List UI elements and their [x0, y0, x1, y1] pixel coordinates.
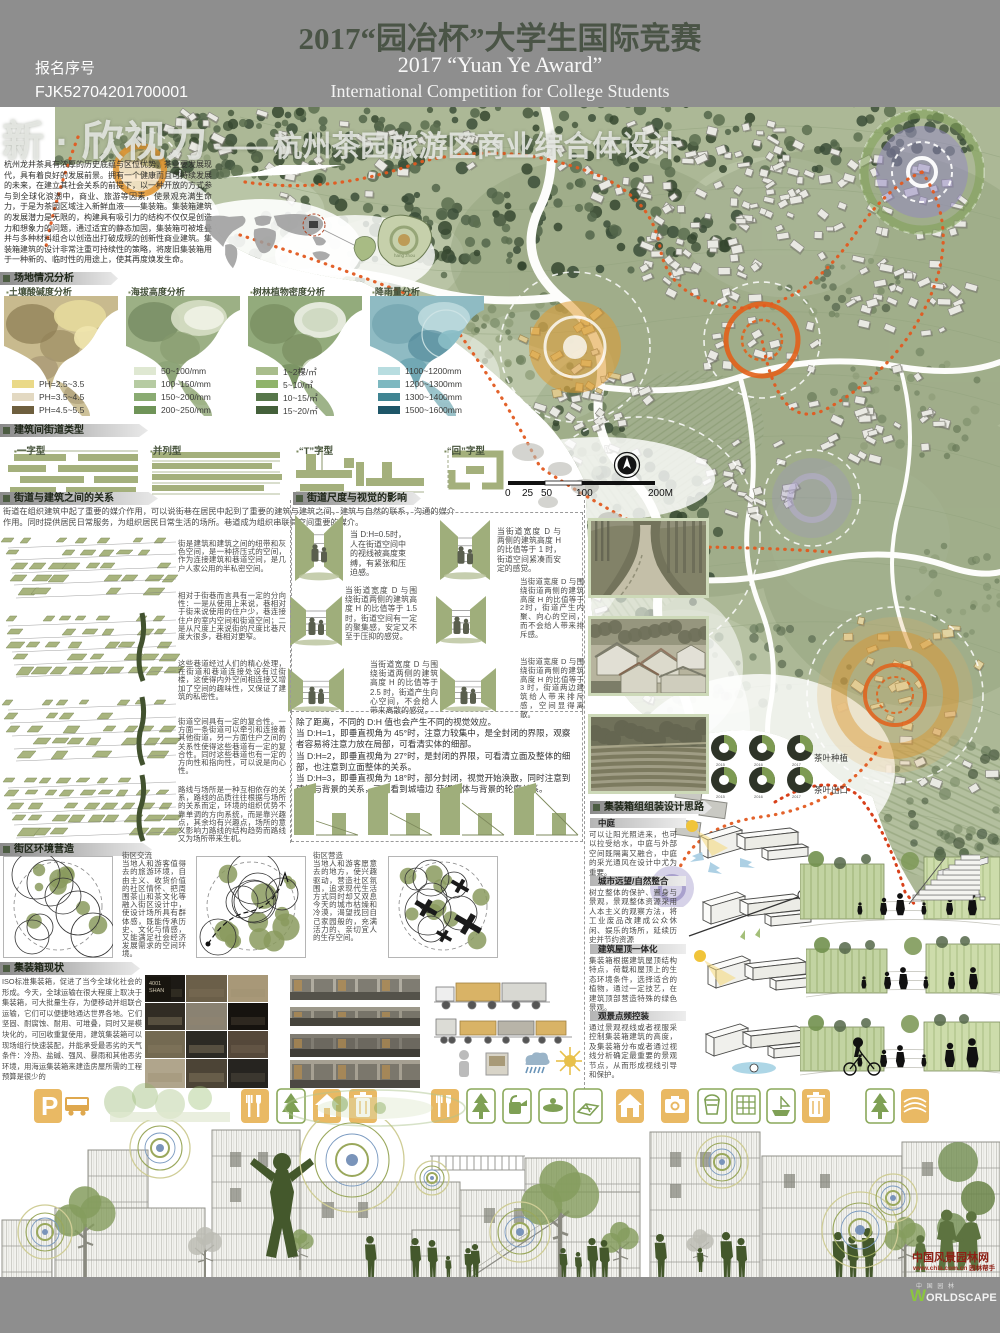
svg-text:2017: 2017 — [792, 794, 802, 798]
svg-text:25: 25 — [522, 488, 534, 499]
svg-text:2017: 2017 — [792, 762, 802, 767]
svg-text:100: 100 — [576, 488, 593, 499]
svg-text:50: 50 — [541, 488, 553, 499]
svg-text:2016: 2016 — [754, 794, 764, 798]
svg-text:2015: 2015 — [716, 794, 726, 798]
svg-text:SHAN: SHAN — [149, 988, 164, 994]
svg-text:hang zhou: hang zhou — [394, 253, 416, 258]
svg-text:2016: 2016 — [754, 762, 764, 767]
svg-text:2015: 2015 — [716, 762, 726, 767]
svg-text:4001: 4001 — [149, 981, 161, 987]
svg-text:200M: 200M — [648, 488, 673, 499]
svg-text:P: P — [41, 1091, 58, 1121]
